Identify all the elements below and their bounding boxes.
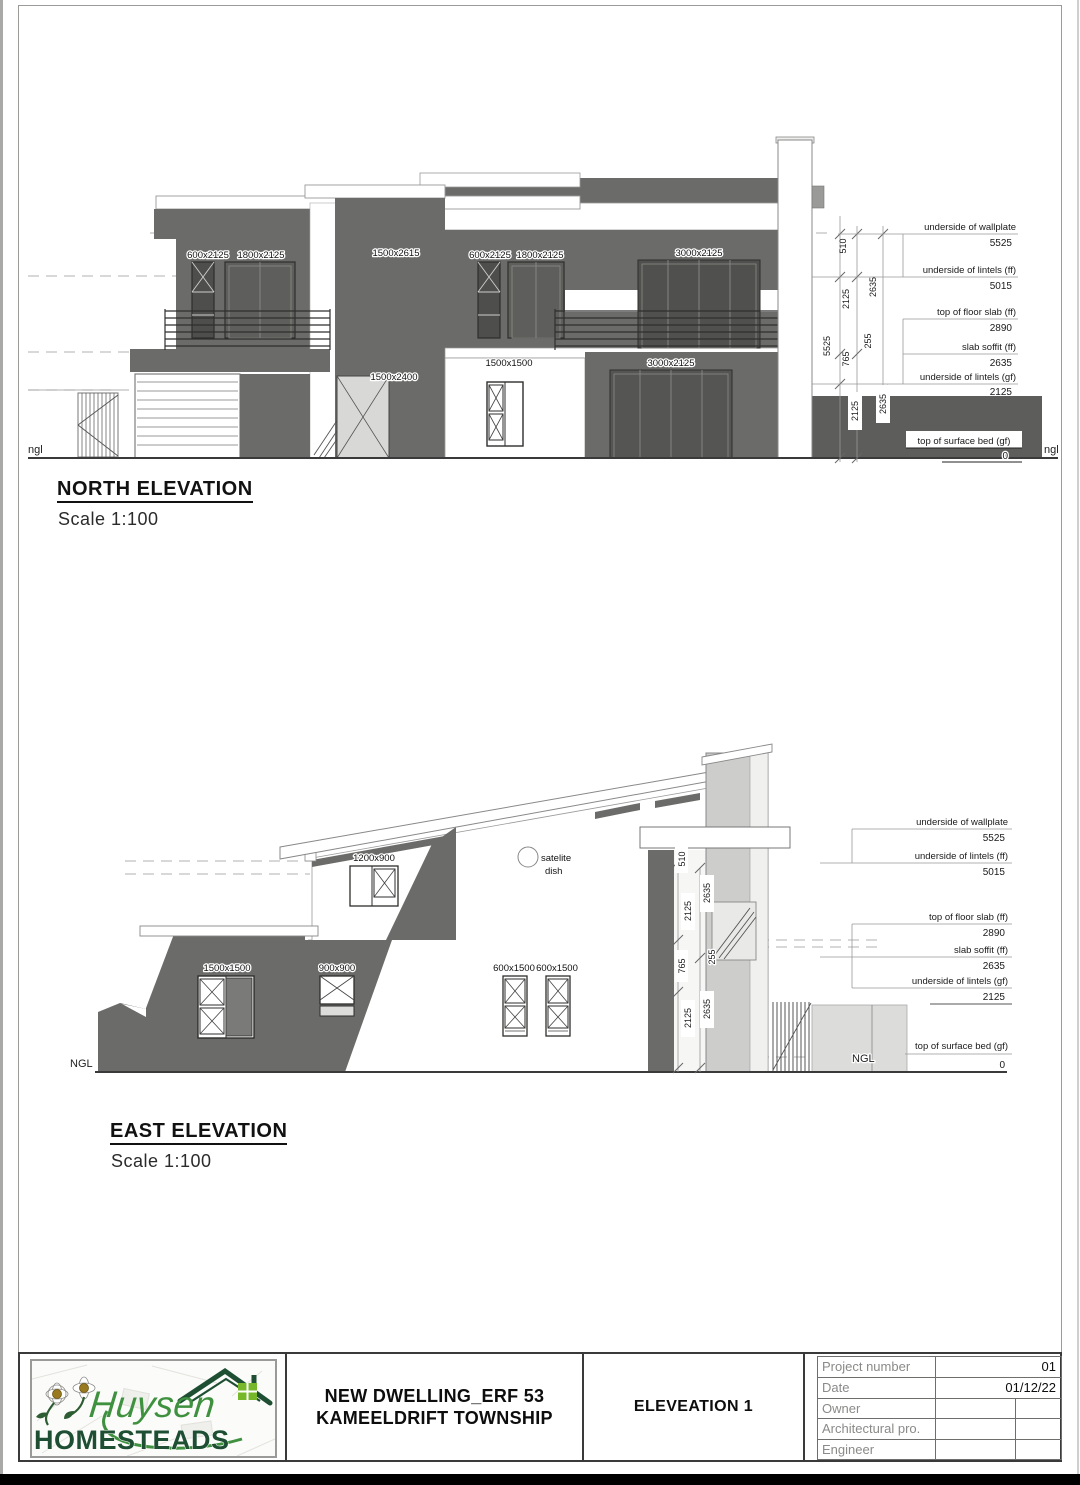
level-value: 2890: [983, 928, 1006, 939]
window-size-label: 1500x1500: [485, 358, 532, 369]
level-label: top of surface bed (gf): [915, 1041, 1008, 1052]
north-building: [130, 173, 782, 458]
field-value-extra: [1016, 1440, 1061, 1459]
field-label: Project number: [818, 1357, 936, 1377]
north-ngl-left: ngl: [28, 444, 43, 456]
brand-script-text: Huysen: [87, 1383, 217, 1425]
field-value: 01/12/22: [936, 1378, 1061, 1398]
east-ngl-right: NGL: [852, 1053, 875, 1065]
project-title-line2: KAMEELDRIFT TOWNSHIP: [316, 1407, 553, 1430]
table-row: Project number 01: [817, 1356, 1062, 1377]
window-size-label: 1500x2400: [370, 372, 417, 383]
field-value: 01: [936, 1357, 1061, 1377]
table-row: Engineer: [817, 1439, 1062, 1460]
level-value: 5015: [983, 867, 1006, 878]
east-window-1200x900: [350, 866, 398, 906]
project-title-line1: NEW DWELLING_ERF 53: [316, 1385, 553, 1408]
level-label: top of floor slab (ff): [929, 912, 1008, 923]
level-label: underside of lintels (gf): [912, 976, 1008, 987]
level-value: 5015: [990, 281, 1013, 292]
daisy-flowers-icon: [36, 1377, 95, 1425]
window-size-label: 600x1500: [536, 963, 578, 974]
drawing-sheet: ngl ngl 600x2125 1800x2125 1500x2615 600…: [0, 0, 1080, 1485]
field-value: [936, 1399, 1016, 1419]
window-size-label: 3000x2125: [647, 358, 694, 369]
level-value: 2125: [983, 992, 1006, 1003]
level-value: 0: [999, 1060, 1005, 1071]
table-row: Date 01/12/22: [817, 1377, 1062, 1398]
window-size-label: 3000x2125: [675, 248, 722, 259]
brand-caps-text: HOMESTEADS: [34, 1425, 230, 1455]
north-window-600x2125-left: [192, 262, 214, 338]
level-value: 2890: [990, 323, 1013, 334]
east-window-1500x1500: [198, 976, 254, 1038]
dim-text: 5525: [822, 336, 832, 356]
field-value: [936, 1419, 1016, 1439]
level-label: underside of lintels (ff): [923, 265, 1016, 276]
north-ngl-right: ngl: [1044, 444, 1059, 456]
east-elevation-title: EAST ELEVATION: [110, 1120, 287, 1143]
window-size-label: 1800x2125: [237, 250, 284, 261]
company-logo: Huysen HOMESTEADS: [30, 1359, 277, 1458]
north-elevation-drawing: ngl ngl 600x2125 1800x2125 1500x2615 600…: [28, 137, 1059, 463]
east-building: [98, 744, 907, 1072]
level-label: underside of wallplate: [916, 817, 1008, 828]
dim-text: 255: [707, 949, 717, 964]
level-label: top of floor slab (ff): [937, 307, 1016, 318]
field-value-extra: [1016, 1419, 1061, 1439]
project-title-cell: NEW DWELLING_ERF 53 KAMEELDRIFT TOWNSHIP: [287, 1354, 584, 1460]
field-value-extra: [1016, 1399, 1061, 1419]
dim-text: 2125: [683, 901, 693, 921]
field-label: Architectural pro.: [818, 1419, 936, 1439]
level-value: 0: [1002, 451, 1008, 462]
east-elevation-scale: Scale 1:100: [111, 1151, 212, 1172]
sheet-title: ELEVEATION 1: [634, 1398, 753, 1416]
table-row: Architectural pro.: [817, 1418, 1062, 1439]
field-value: [936, 1440, 1016, 1459]
dim-text: 2125: [683, 1008, 693, 1028]
level-label: underside of lintels (ff): [915, 851, 1008, 862]
north-door-3000x2125-ff: [638, 260, 760, 348]
level-label: top of surface bed (gf): [918, 436, 1011, 447]
dim-text: 2125: [850, 401, 860, 421]
level-value: 2125: [990, 387, 1013, 398]
table-row: Owner: [817, 1398, 1062, 1419]
title-block: Huysen HOMESTEADS NEW DWELLING_ERF 53 KA…: [18, 1352, 1062, 1462]
window-size-label: 900x900: [319, 963, 355, 974]
east-ngl-left: NGL: [70, 1058, 93, 1070]
window-size-label: 1800x2125: [516, 250, 563, 261]
window-size-label: 600x2125: [187, 250, 229, 261]
satellite-dish-icon: [518, 847, 538, 867]
east-window-600x1500-a: [503, 976, 527, 1036]
field-label: Engineer: [818, 1440, 936, 1459]
project-info-table: Project number 01 Date 01/12/22 Owner Ar…: [817, 1356, 1062, 1460]
window-size-label: 1500x2615: [372, 248, 419, 259]
north-door-3000x2125-gf: [610, 370, 732, 458]
level-value: 5525: [983, 833, 1006, 844]
east-elevation-drawing: NGL NGL 1200x900 1500x1500 900x900 600x1…: [70, 744, 1012, 1073]
dim-text: 2125: [841, 289, 851, 309]
north-door-1800x2125-left: [225, 262, 295, 338]
dim-text: 765: [677, 958, 687, 973]
east-window-600x1500-b: [546, 976, 570, 1036]
level-label: underside of lintels (gf): [920, 372, 1016, 383]
satellite-dish-label-2: dish: [545, 866, 562, 877]
east-window-900x900: [320, 976, 354, 1016]
window-size-label: 1500x1500: [203, 963, 250, 974]
dim-text: 2635: [702, 999, 712, 1019]
north-elevation-scale: Scale 1:100: [58, 509, 159, 530]
logo-cell: Huysen HOMESTEADS: [20, 1354, 287, 1460]
north-elevation-title: NORTH ELEVATION: [57, 478, 253, 501]
level-value: 2635: [983, 961, 1006, 972]
north-window-1500x1500: [487, 382, 523, 446]
dim-text: 510: [677, 851, 687, 866]
satellite-dish-label-1: satelite: [541, 853, 571, 864]
level-label: slab soffit (ff): [954, 945, 1008, 956]
east-entrance-beam: [640, 827, 790, 848]
level-value: 5525: [990, 238, 1013, 249]
level-label: slab soffit (ff): [962, 342, 1016, 353]
elevation-drawings: ngl ngl 600x2125 1800x2125 1500x2615 600…: [0, 0, 1080, 1350]
east-gate: [773, 1002, 811, 1071]
level-value: 2635: [990, 358, 1013, 369]
dim-text: 2635: [878, 394, 888, 414]
page-bottom-bar: [0, 1474, 1080, 1485]
field-label: Date: [818, 1378, 936, 1398]
window-size-label: 600x2125: [469, 250, 511, 261]
window-size-label: 600x1500: [493, 963, 535, 974]
field-label: Owner: [818, 1399, 936, 1419]
window-size-label: 1200x900: [353, 853, 395, 864]
north-window-600x2125-right: [478, 262, 500, 338]
north-ground-mass: [812, 396, 1042, 458]
dim-text: 510: [838, 238, 848, 253]
dim-text: 765: [841, 351, 851, 366]
dim-text: 255: [863, 333, 873, 348]
sheet-title-cell: ELEVEATION 1: [584, 1354, 805, 1460]
level-label: underside of wallplate: [924, 222, 1016, 233]
dim-text: 2635: [702, 883, 712, 903]
dim-text: 2635: [868, 277, 878, 297]
